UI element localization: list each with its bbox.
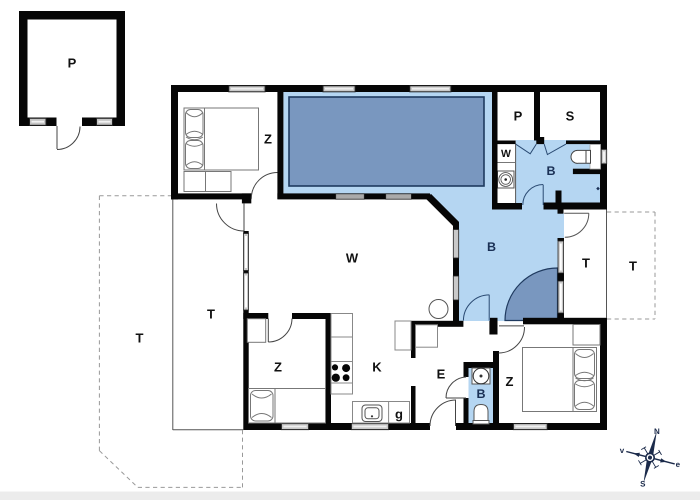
svg-text:e: e [676,460,681,469]
svg-text:W: W [501,148,511,160]
svg-text:N: N [654,427,660,436]
svg-text:S: S [566,109,575,124]
svg-text:Z: Z [264,132,272,147]
svg-text:T: T [629,259,637,274]
svg-text:T: T [582,256,590,271]
svg-text:v: v [620,446,625,455]
svg-text:g: g [395,407,403,422]
svg-text:B: B [487,240,496,254]
svg-text:S: S [640,480,646,489]
svg-text:Z: Z [506,374,514,389]
svg-text:E: E [437,367,446,382]
svg-text:Z: Z [274,360,282,375]
svg-text:T: T [207,307,215,322]
svg-text:T: T [136,331,144,346]
svg-text:W: W [346,251,359,266]
svg-text:K: K [372,360,382,375]
svg-text:B: B [546,164,555,178]
svg-text:P: P [514,109,523,124]
svg-text:P: P [68,56,77,71]
svg-text:B: B [476,387,485,401]
